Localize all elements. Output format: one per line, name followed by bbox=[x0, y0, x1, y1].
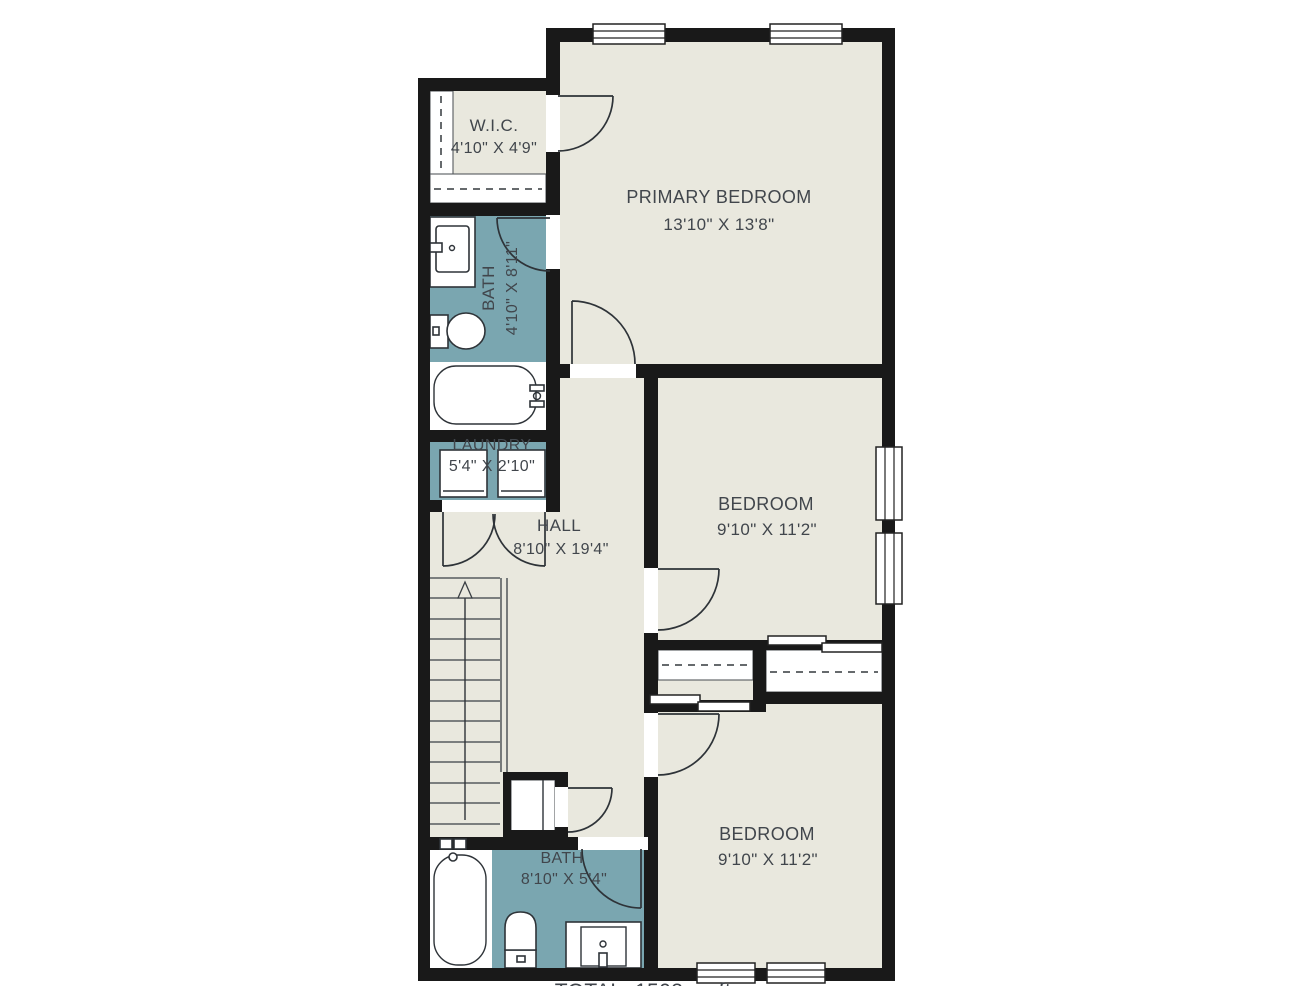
closet-bedroom-middle bbox=[766, 650, 882, 692]
bath-lower-dims: 8'10" X 5'4" bbox=[521, 871, 607, 888]
wic-label: W.I.C. bbox=[470, 116, 519, 135]
hall-label: HALL bbox=[537, 516, 581, 535]
toilet-bowl bbox=[447, 313, 485, 349]
door-opening bbox=[578, 837, 648, 850]
bedroom-middle-dims: 9'10" X 11'2" bbox=[717, 520, 817, 539]
door-opening bbox=[546, 215, 560, 269]
bypass-door-panel bbox=[768, 636, 826, 645]
floor-plan-canvas: W.I.C. 4'10" X 4'9" BATH 4'10" X 8'11" L… bbox=[0, 0, 1312, 986]
understair-closet-interior bbox=[511, 780, 555, 837]
door-opening bbox=[570, 364, 636, 378]
tub-faucet bbox=[449, 853, 457, 861]
primary-bedroom-label: PRIMARY BEDROOM bbox=[626, 187, 811, 207]
wall-segment bbox=[644, 378, 658, 968]
toilet-flush-button bbox=[517, 956, 525, 962]
bypass-door-panel bbox=[650, 695, 700, 704]
wall-segment bbox=[418, 203, 560, 216]
wall-segment bbox=[418, 78, 560, 91]
toilet-bowl bbox=[505, 912, 536, 950]
laundry-label: LAUNDRY bbox=[453, 437, 532, 454]
wic-dims: 4'10" X 4'9" bbox=[451, 140, 537, 157]
tub-handle bbox=[454, 839, 466, 849]
wall-segment bbox=[546, 500, 560, 512]
door-opening bbox=[644, 568, 658, 633]
window bbox=[876, 447, 902, 520]
bypass-door-panel bbox=[822, 643, 882, 652]
door-opening bbox=[644, 713, 658, 777]
door-opening bbox=[442, 500, 546, 512]
tub-handle bbox=[530, 401, 544, 407]
laundry-dims: 5'4" X 2'10" bbox=[449, 458, 535, 475]
window bbox=[593, 24, 665, 44]
bedroom-middle-label: BEDROOM bbox=[718, 494, 814, 514]
sink-faucet bbox=[430, 243, 442, 252]
toilet-flush-button bbox=[433, 327, 439, 335]
door-opening bbox=[555, 787, 568, 827]
window bbox=[767, 963, 825, 983]
tub-handle bbox=[440, 839, 452, 849]
bath-lower-label: BATH bbox=[540, 850, 583, 867]
floor-plan: W.I.C. 4'10" X 4'9" BATH 4'10" X 8'11" L… bbox=[0, 0, 1312, 986]
wall-segment bbox=[503, 830, 568, 838]
total-area-label: TOTAL: 1503 sq ft bbox=[555, 980, 731, 986]
door-opening bbox=[546, 95, 560, 152]
sink-faucet bbox=[599, 953, 607, 967]
wall-segment bbox=[418, 500, 442, 512]
window bbox=[876, 533, 902, 604]
bedroom-lower-dims: 9'10" X 11'2" bbox=[718, 850, 818, 869]
wall-segment bbox=[503, 772, 511, 838]
bath-upper-label: BATH bbox=[479, 265, 498, 311]
bedroom-lower-label: BEDROOM bbox=[719, 824, 815, 844]
tub-handle bbox=[530, 385, 544, 391]
bypass-door-panel bbox=[698, 702, 750, 711]
primary-bedroom-dims: 13'10" X 13'8" bbox=[663, 215, 774, 234]
wall-segment bbox=[753, 692, 895, 704]
bath-upper-dims: 4'10" X 8'11" bbox=[504, 241, 521, 335]
window bbox=[770, 24, 842, 44]
hall-dims: 8'10" X 19'4" bbox=[513, 541, 609, 558]
